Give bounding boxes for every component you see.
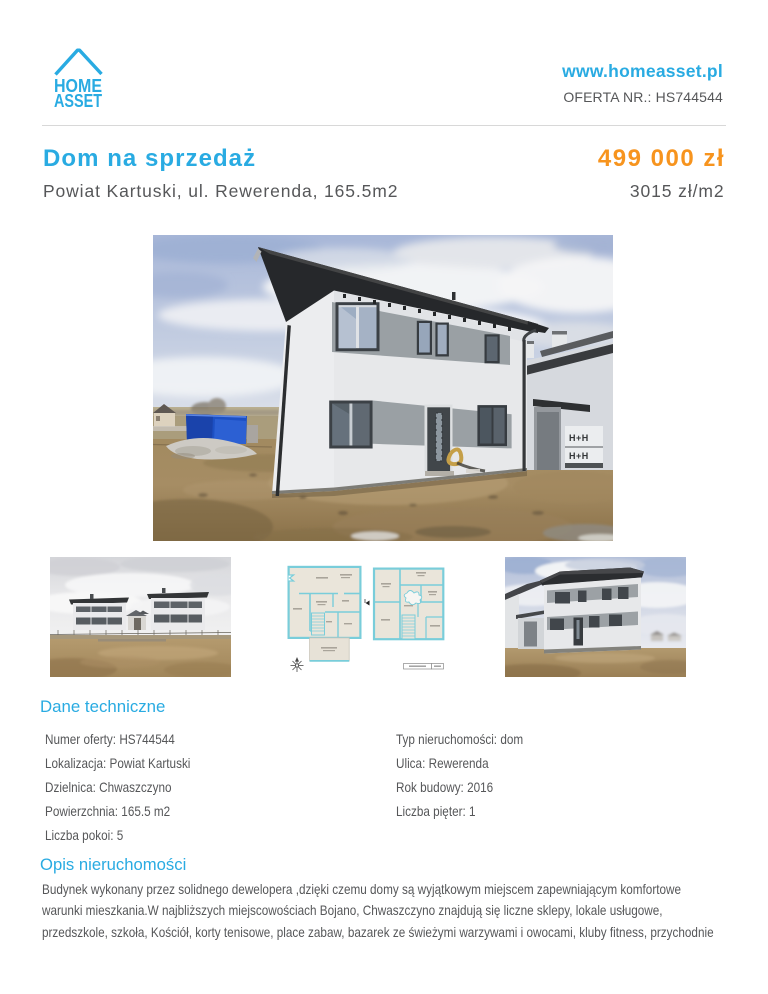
svg-text:ASSET: ASSET	[54, 90, 103, 109]
svg-text:H+H: H+H	[569, 451, 589, 461]
svg-text:H+H: H+H	[569, 433, 589, 443]
